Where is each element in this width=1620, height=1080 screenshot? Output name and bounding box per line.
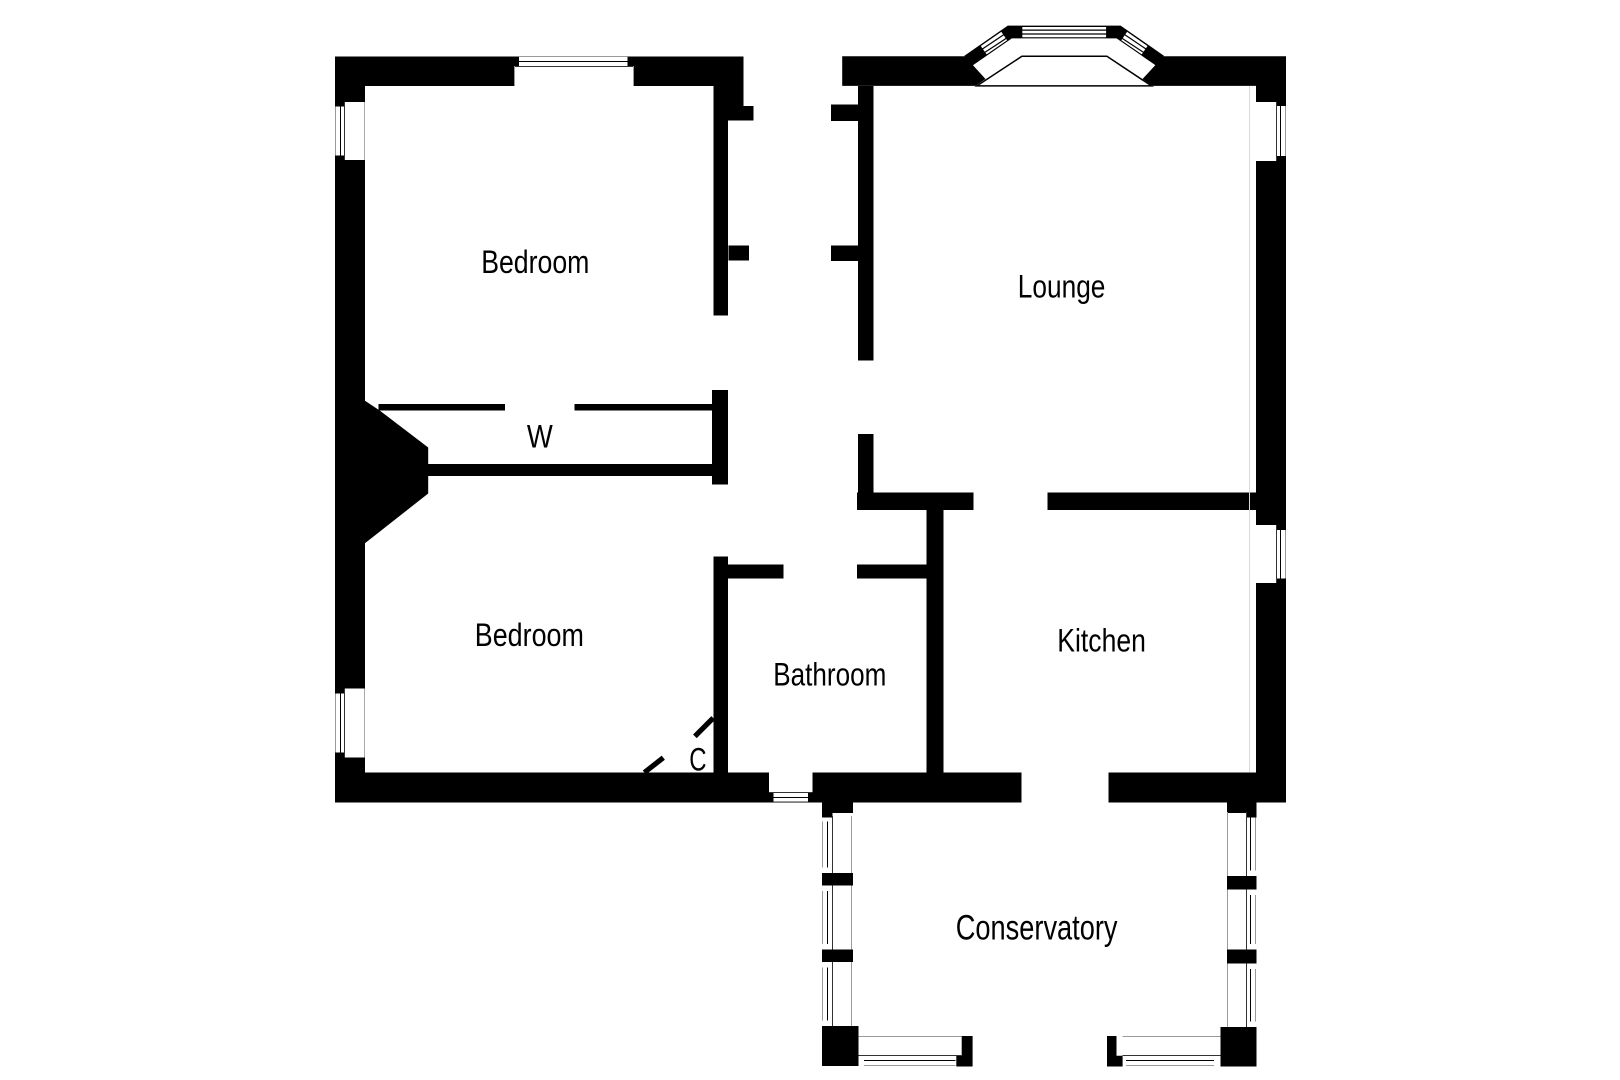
svg-text:Bedroom: Bedroom <box>481 244 589 280</box>
svg-text:Bedroom: Bedroom <box>475 617 584 653</box>
svg-text:Kitchen: Kitchen <box>1057 622 1146 658</box>
svg-text:C: C <box>689 742 706 778</box>
svg-text:Conservatory: Conservatory <box>956 909 1118 948</box>
svg-text:W: W <box>527 419 554 455</box>
svg-text:Lounge: Lounge <box>1018 269 1106 305</box>
svg-text:Bathroom: Bathroom <box>773 657 886 693</box>
